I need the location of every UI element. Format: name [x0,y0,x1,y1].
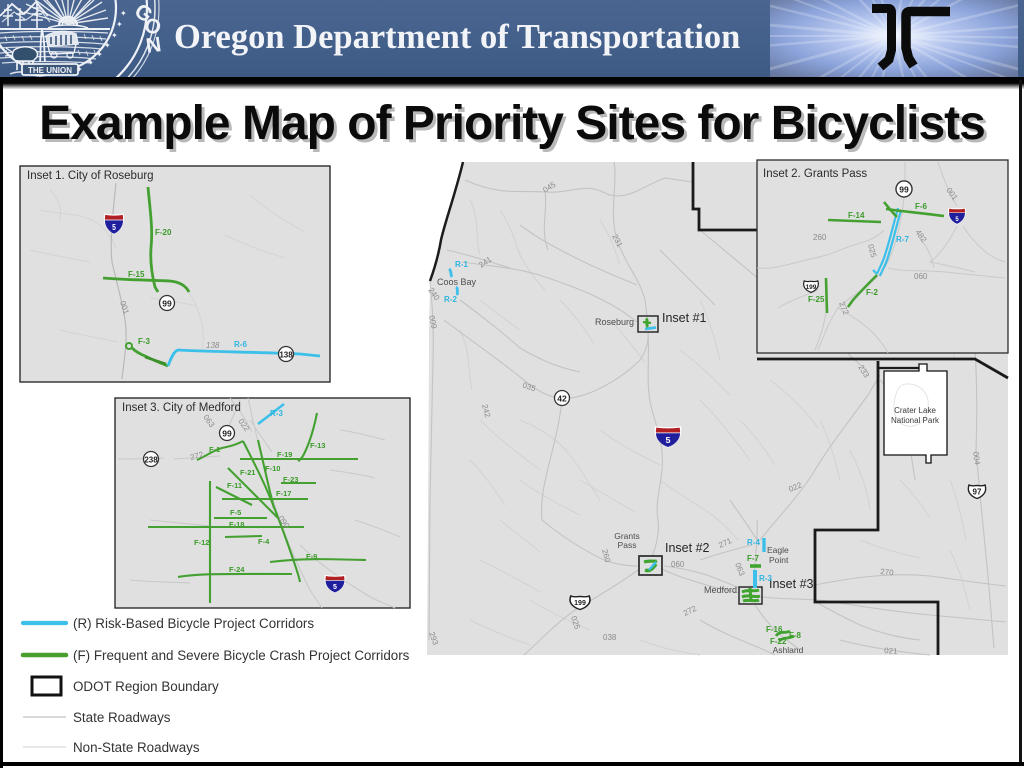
svg-text:97: 97 [973,488,982,497]
svg-text:Inset #2: Inset #2 [665,541,710,555]
svg-text:Medford: Medford [704,585,737,595]
svg-text:99: 99 [222,429,232,439]
svg-text:Crater Lake: Crater Lake [894,406,936,415]
svg-text:F-11: F-11 [227,481,242,490]
svg-text:F-21: F-21 [240,468,255,477]
svg-text:R-3: R-3 [270,409,283,418]
svg-text:038: 038 [603,633,617,642]
svg-text:Pass: Pass [618,540,637,550]
svg-text:F-6: F-6 [915,202,928,211]
svg-text:Coos Bay: Coos Bay [437,277,477,287]
svg-text:State Roadways: State Roadways [73,710,171,725]
svg-text:National Park: National Park [891,416,940,425]
svg-text:R-1: R-1 [455,260,468,269]
svg-text:F-7: F-7 [747,554,760,563]
svg-text:F-8: F-8 [789,631,802,640]
svg-text:F-23: F-23 [283,475,298,484]
svg-text:99: 99 [899,185,909,195]
svg-text:F-15: F-15 [128,270,145,279]
svg-text:138: 138 [279,351,293,360]
svg-text:F-3: F-3 [138,337,151,346]
svg-text:F-1: F-1 [209,445,220,454]
svg-text:Inset 1. City of Roseburg: Inset 1. City of Roseburg [27,170,154,182]
svg-text:F-19: F-19 [277,450,292,459]
svg-text:F-4: F-4 [258,537,270,546]
svg-text:F-14: F-14 [848,211,865,220]
svg-text:004: 004 [971,451,982,466]
svg-text:260: 260 [813,233,827,242]
svg-text:(R) Risk-Based Bicycle Project: (R) Risk-Based Bicycle Project Corridors [73,616,314,631]
svg-text:Inset #1: Inset #1 [662,311,707,325]
svg-text:F-12: F-12 [194,538,209,547]
svg-text:R-4: R-4 [747,538,760,547]
svg-text:F-20: F-20 [155,228,172,237]
svg-text:270: 270 [880,567,895,577]
svg-text:F-5: F-5 [230,508,241,517]
svg-text:ODOT Region Boundary: ODOT Region Boundary [73,679,219,694]
svg-text:060: 060 [671,560,685,569]
svg-text:238: 238 [144,456,158,465]
svg-text:99: 99 [162,299,172,309]
svg-text:F-17: F-17 [276,489,291,498]
svg-text:Inset #3: Inset #3 [769,577,814,591]
svg-text:F-9: F-9 [306,552,317,561]
svg-text:Non-State Roadways: Non-State Roadways [73,740,200,755]
svg-text:199: 199 [574,600,586,607]
svg-text:42: 42 [557,394,567,404]
svg-text:R-7: R-7 [896,235,909,244]
svg-text:F-10: F-10 [265,464,280,473]
svg-text:F-2: F-2 [866,288,879,297]
svg-text:Point: Point [769,555,789,565]
svg-text:F-16: F-16 [766,625,783,634]
svg-text:060: 060 [914,272,928,281]
svg-text:F-25: F-25 [808,295,825,304]
svg-text:Eagle: Eagle [767,545,789,555]
svg-text:R-3: R-3 [759,574,772,583]
svg-text:(F) Frequent and Severe Bicycl: (F) Frequent and Severe Bicycle Crash Pr… [73,648,410,663]
svg-text:021: 021 [884,646,898,656]
svg-text:Inset 3. City of Medford: Inset 3. City of Medford [122,402,241,414]
svg-text:Inset 2. Grants Pass: Inset 2. Grants Pass [763,168,867,180]
svg-text:R-6: R-6 [234,340,247,349]
svg-text:F-18: F-18 [229,520,244,529]
svg-text:F-13: F-13 [310,441,325,450]
svg-text:199: 199 [806,284,817,291]
svg-text:Ashland: Ashland [773,645,804,655]
svg-text:R-2: R-2 [444,295,457,304]
svg-text:F-22: F-22 [770,637,787,646]
svg-text:138: 138 [206,341,220,350]
svg-text:Roseburg: Roseburg [595,317,634,327]
svg-text:F-24: F-24 [229,565,245,574]
